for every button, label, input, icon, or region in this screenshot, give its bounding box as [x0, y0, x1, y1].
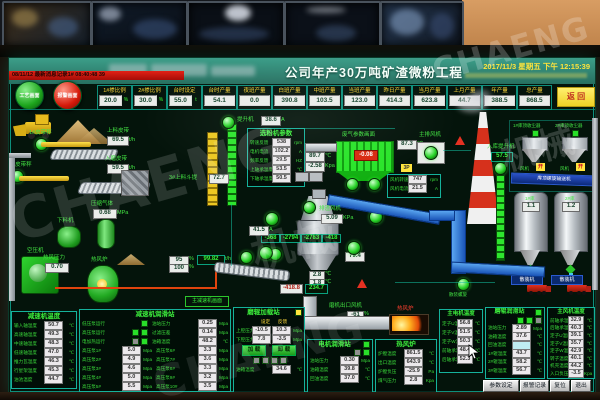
- cctv-feed-light: [99, 7, 121, 21]
- mill-pressure-2: -2794: [280, 234, 301, 243]
- param-row: 下腔压力7.8-3.5Mpa: [234, 335, 304, 344]
- status-indicator: [535, 309, 542, 316]
- param-value: 5.0: [122, 346, 141, 355]
- mouse-cursor: [468, 344, 480, 360]
- param-label: 高压泵3#: [82, 366, 122, 372]
- param-row: 高压泵2#4.9Mpa: [80, 355, 154, 364]
- param-value: 5.5: [122, 382, 141, 391]
- param-unit: Mpa: [141, 366, 152, 371]
- param-label: 风机转速: [390, 177, 408, 183]
- param-value: 48.2: [198, 337, 217, 346]
- filter-discharge-indicator: [346, 178, 359, 191]
- indicator-label: 电加热运行: [82, 339, 130, 345]
- param-value: 39.8: [340, 365, 359, 374]
- param-label: 高压泵7#: [156, 357, 198, 363]
- param-label: 出口温度: [378, 360, 404, 366]
- status-indicator: [280, 357, 287, 364]
- stat-unit: %: [157, 95, 165, 106]
- param-label: 油箱温度: [488, 334, 512, 340]
- param-value: 3.5: [198, 382, 217, 391]
- cyclone1-indicator: [532, 130, 539, 137]
- mill-cap: [312, 189, 326, 199]
- stat-box: 台时产量54.1: [202, 85, 237, 110]
- flow-line: [395, 282, 495, 283]
- mill-belt-label: 入磨皮带: [105, 156, 127, 163]
- param-label: 定子U温度: [550, 333, 568, 339]
- indicator-row: 高压泵运行: [80, 328, 150, 337]
- mill-pressure-3: -2783: [301, 234, 322, 243]
- param-label: 前轴承温度: [442, 348, 457, 354]
- feed-motor-indicator: [240, 251, 253, 264]
- bulk-screw-indicator: [457, 278, 470, 291]
- param-row: 高压泵9#3.2Mpa: [154, 373, 230, 382]
- param-label: 过滤压差: [152, 330, 198, 336]
- param-value: 49.3: [44, 330, 63, 339]
- stat-value: 55.0: [169, 95, 192, 106]
- param-unit: ℃: [473, 330, 480, 336]
- param-label: 输入轴温度: [14, 323, 44, 329]
- cctv-feed-light: [390, 9, 424, 35]
- param-label: 油箱温度: [152, 339, 198, 345]
- param-value: 4.6: [122, 364, 141, 373]
- flame-stove-label: 热风炉: [397, 306, 414, 313]
- datetime-display: 2017/11/3 星期五 下午 12:15:39: [483, 61, 590, 72]
- return-button[interactable]: 返 回: [557, 87, 595, 107]
- valve2-value: 100: [169, 264, 189, 273]
- cctv-feed-light: [225, 5, 251, 21]
- param-value: 56.7: [512, 366, 531, 375]
- silo1-cone: [520, 250, 540, 265]
- mill-current-value: 41.5: [249, 226, 269, 236]
- main-fan-indicator: [424, 146, 438, 160]
- param-row: 高压泵7#3.6Mpa: [154, 355, 230, 364]
- param-label: 入口负压: [550, 371, 568, 377]
- cctv-feed-light: [48, 17, 78, 37]
- param-value: 3.3: [198, 364, 217, 373]
- stat-value: 54.1: [204, 95, 235, 106]
- status-indicator: [132, 338, 139, 345]
- belt1-label: 1#皮带秤: [29, 130, 52, 137]
- col-header: 反馈: [274, 319, 291, 325]
- cyclone2-label: 2#库顶收尘器: [555, 122, 583, 129]
- param-unit: Kpa: [423, 378, 434, 383]
- param-label: 炉膛温度: [378, 351, 404, 357]
- param-row: 定子U温度56.8℃: [440, 319, 482, 328]
- param-row: 风机转速747rpm: [388, 175, 440, 184]
- alarm-log-button[interactable]: 报警记录: [520, 380, 549, 392]
- param-label: 回油温度: [488, 342, 512, 348]
- param-unit: ℃: [531, 351, 542, 357]
- param-label: 下轴承温度: [250, 176, 272, 182]
- belt1-unit: t/h: [129, 137, 135, 144]
- stat-box: 1#掺比例20.0%: [97, 85, 132, 110]
- slag-fan-unit: KPa: [343, 215, 353, 222]
- param-row: 频率反馈29.5HZ: [248, 156, 304, 165]
- fan-panel: 风机转速747rpm 风机电流21.5A: [387, 174, 441, 198]
- damper-box: [295, 172, 309, 182]
- param-row: 炉膛负压-25.9Pa: [376, 367, 436, 376]
- param-unit: Mpa: [217, 321, 228, 326]
- filter-discharge-indicator: [368, 178, 381, 191]
- feeder-label: 下料机: [57, 218, 74, 225]
- param-unit: ℃: [63, 323, 74, 329]
- hoist2-value: 72.7: [209, 174, 229, 184]
- stat-box: 当月产量623.8: [412, 85, 447, 110]
- param-label: 中速轴温度: [14, 341, 44, 347]
- stat-label: 夜班产量: [238, 86, 271, 95]
- param-value: 50.5: [272, 174, 291, 183]
- pipe-left-elbow: [9, 153, 31, 158]
- filter-label: 废气参数画面: [342, 132, 375, 139]
- param-row: 炉膛温度861.5℃: [376, 349, 436, 358]
- damper-box: [309, 172, 323, 182]
- param-value: 0.25: [198, 319, 217, 328]
- slag-fan-value: 5.09: [321, 214, 343, 224]
- param-unit: Mpa: [217, 330, 228, 335]
- param-unit: ℃: [584, 333, 592, 339]
- alarm-screen-button[interactable]: 报警画面: [53, 81, 82, 110]
- air-tank: [97, 219, 115, 249]
- main-fan-label: 主排风机: [419, 132, 441, 139]
- stat-label: 总产量: [518, 86, 551, 95]
- param-label: 下腔压力: [236, 337, 252, 343]
- param-label: 定子W温度: [550, 348, 568, 354]
- param-unit: ℃: [531, 334, 542, 340]
- motor-lube-panel: 电机润滑站 油站压力0.30Mpa 油箱温度39.8℃ 回油温度37.0℃: [307, 339, 373, 393]
- flame-icon: [392, 316, 424, 331]
- feed-belt-label: 上料皮带: [107, 128, 129, 135]
- param-value: 0.14: [198, 328, 217, 337]
- compressed-gas-unit: MPa: [117, 210, 128, 217]
- param-value: -3.5: [568, 369, 584, 378]
- panel-title: 电机润滑站: [308, 340, 361, 349]
- compressed-gas-value: 0.68: [93, 209, 117, 219]
- param-row: 煤气压力2.8Kpa: [376, 376, 436, 385]
- param-row: 回油温度℃: [486, 341, 544, 350]
- param-label: 高压泵4#: [82, 375, 122, 381]
- bucket-elevator-green: [227, 124, 237, 206]
- stat-value: 623.8: [414, 95, 445, 106]
- param-unit: A: [291, 149, 302, 154]
- param-value: 4.9: [122, 355, 141, 364]
- unload-button[interactable]: 卸 载: [272, 345, 296, 356]
- indicator-row: 低压泵运行: [80, 319, 150, 328]
- param-value: 3.6: [198, 355, 217, 364]
- wall-shadow: [0, 45, 600, 57]
- silo2-cone: [560, 250, 580, 265]
- param-row: 风机电流21.5A: [388, 184, 440, 193]
- param-value: 48.3: [44, 339, 63, 348]
- belt1-material-flow: [41, 142, 91, 147]
- stat-value: 390.8: [274, 95, 305, 106]
- indicator-label: 低压泵运行: [82, 321, 139, 327]
- slag-fan-label: 排渣风机: [319, 206, 341, 213]
- cctv-monitor: [187, 1, 285, 48]
- param-label: 行星架温度: [14, 368, 44, 374]
- param-value: -10.5: [252, 326, 271, 335]
- param-value: 102.2: [272, 147, 291, 156]
- reset-button[interactable]: 复位: [550, 380, 570, 392]
- param-row: 高压泵6#3.3Mpa: [154, 346, 230, 355]
- stat-box: 中班产量103.5: [307, 85, 342, 110]
- cctv-monitor: [91, 1, 188, 48]
- param-unit: Mpa: [217, 366, 228, 371]
- flow-line: [231, 204, 232, 266]
- param-unit: ℃: [584, 318, 592, 324]
- stat-label: 1#掺比例: [98, 86, 131, 95]
- param-value: 747: [408, 175, 427, 184]
- param-label: 前轴承温度: [550, 318, 568, 324]
- param-label: 上腔压力: [236, 328, 252, 334]
- compressed-gas-label: 压缩气体: [91, 201, 113, 208]
- param-unit: Mpa: [531, 326, 542, 331]
- indicator-row: [234, 356, 304, 365]
- silo2-label: 2#库: [565, 195, 575, 202]
- param-row: 中速轴温度48.3℃: [12, 339, 76, 348]
- stat-box: 总产量868.5: [517, 85, 552, 110]
- vibrating-screen: [121, 170, 149, 196]
- param-label: 低速轴温度: [14, 350, 44, 356]
- param-row: 电机电流102.2A: [248, 147, 304, 156]
- roller-lube-panel: 磨辊润滑站 油站压力2.89Mpa 油箱温度37.6℃ 回油温度℃ 1#辊温度4…: [485, 307, 545, 379]
- param-label: 定子V温度: [442, 330, 457, 336]
- param-row: 上腔压力-10.510.3Mpa: [234, 326, 304, 335]
- panel-title: 磨辊润滑站: [486, 308, 533, 317]
- settings-button[interactable]: 参数设定: [483, 380, 519, 392]
- param-value: 10.3: [272, 326, 291, 335]
- param-label: 机壳温度: [550, 363, 568, 369]
- param-unit: ℃: [473, 321, 480, 327]
- silo1-label: 1#库: [525, 195, 535, 202]
- bulk-loader-label: 散装机: [551, 275, 583, 285]
- stat-value: 414.3: [379, 95, 410, 106]
- param-unit: ℃: [584, 325, 592, 331]
- cctv-feed-light: [306, 7, 346, 13]
- param-row: 低速轴温度47.0℃: [12, 348, 76, 357]
- param-unit: ℃: [359, 367, 370, 373]
- cyclone2-body: [562, 137, 588, 151]
- param-row: 油站压力0.30Mpa: [308, 356, 372, 365]
- stat-box: 昨日产量414.3: [377, 85, 412, 110]
- param-unit: ℃: [63, 377, 74, 383]
- gas-press-unit: Kpa: [325, 163, 335, 170]
- reducer-screen-button[interactable]: 主减速机画面: [185, 296, 229, 307]
- cctv-monitor: [2, 1, 92, 48]
- param-label: 油箱温度: [236, 367, 272, 373]
- status-indicator: [354, 349, 361, 356]
- param-value: 3.3: [198, 346, 217, 355]
- stat-box: 白班产量390.8: [272, 85, 307, 110]
- param-unit: HZ: [291, 158, 302, 163]
- stat-label: 昨日产量: [378, 86, 411, 95]
- param-label: 定子V温度: [550, 341, 568, 347]
- alarm-triangle-icon: [455, 136, 465, 145]
- stove-panel: 热风炉 炉膛温度861.5℃ 出口温度643.9℃ 炉膛负压-25.9Pa 煤气…: [375, 339, 437, 393]
- param-label: 高压泵2#: [82, 357, 122, 363]
- param-row: 2#辊温度58.2℃: [486, 358, 544, 367]
- param-value: 7.8: [252, 335, 271, 344]
- mill-motor-indicator: [347, 241, 361, 255]
- status-indicator: [363, 349, 370, 356]
- process-screen-button[interactable]: 工艺画面: [15, 81, 44, 110]
- param-unit: Mpa: [141, 375, 152, 380]
- cctv-feed-light: [133, 19, 177, 39]
- param-label: 频率反馈: [250, 158, 272, 164]
- param-label: 上轴承温度: [250, 167, 272, 173]
- status-indicator: [253, 357, 260, 364]
- status-indicator: [271, 357, 278, 364]
- cctv-feed-light: [12, 9, 38, 27]
- param-row: 油箱温度48.2℃: [150, 337, 230, 346]
- hot-gas-pipe: [55, 287, 217, 289]
- param-value: 50.7: [44, 321, 63, 330]
- cyclone1-label: 1#库顶收尘器: [513, 122, 541, 129]
- scada-screen: 公司年产30万吨矿渣微粉工程 2017/11/3 星期五 下午 12:15:39…: [8, 57, 596, 394]
- param-row: 高压泵5#5.5Mpa: [80, 382, 154, 391]
- stove-pressure-label: 热风压力: [43, 255, 65, 262]
- header-row: 设定反馈: [234, 317, 304, 326]
- alarm-message-bar: 08/11/12 最新消息记录1# 08:40:48 39: [9, 71, 184, 80]
- cyclone1-state: 开: [536, 163, 545, 171]
- param-unit: ℃: [291, 367, 302, 373]
- smoke: [471, 90, 491, 102]
- panel-title: 热风炉: [376, 340, 436, 349]
- stat-value: 30.0: [134, 95, 157, 106]
- param-unit: ℃: [359, 376, 370, 382]
- param-label: 转速反馈: [250, 140, 272, 146]
- param-row: 出口温度643.9℃: [376, 358, 436, 367]
- param-row: 推力瓦温度46.3℃: [12, 357, 76, 366]
- param-unit: ℃: [584, 363, 592, 369]
- belt1-value: 69.5: [107, 136, 129, 146]
- panel-title: 磨辊加载站: [234, 308, 293, 317]
- mill-cone: [301, 254, 337, 270]
- loader-cab: [35, 114, 49, 125]
- load-button[interactable]: 加 载: [242, 345, 266, 356]
- stat-box: 夜班产量0.0: [237, 85, 272, 110]
- silo1-level: 1.1: [522, 202, 540, 212]
- param-row: 转速反馈538rpm: [248, 138, 304, 147]
- param-row: 3#辊温度56.7℃: [486, 367, 544, 376]
- stat-label: 2#掺比例: [133, 86, 166, 95]
- param-label: 转子温度: [550, 356, 568, 362]
- param-value: 56.8: [457, 319, 473, 328]
- flow-line: [443, 150, 471, 151]
- truck-icon: [527, 285, 547, 292]
- stat-value: 103.5: [309, 95, 340, 106]
- reducer-temp-panel: 减速机温度 输入轴温度50.7℃ 高速轴温度49.3℃ 中速轴温度48.3℃ 低…: [11, 311, 77, 389]
- stat-value: 123.0: [344, 95, 375, 106]
- param-label: 高速轴温度: [14, 332, 44, 338]
- pipe-right: [592, 118, 598, 290]
- param-row: 高压泵10#3.5Mpa: [154, 382, 230, 391]
- param-unit: A: [427, 186, 438, 191]
- mill-feed-conveyor: [214, 261, 291, 281]
- param-value: 37.0: [340, 374, 359, 383]
- stat-label: 台时产量: [203, 86, 236, 95]
- param-unit: Mpa: [217, 348, 228, 353]
- mill-aux-unit1: ℃: [325, 271, 331, 278]
- param-row: 入口负压-3.5Kpa: [548, 370, 594, 378]
- param-label: 油池温度: [14, 377, 44, 383]
- indicator-row: [308, 349, 372, 356]
- stat-label: 中班产量: [308, 86, 341, 95]
- param-value: 861.5: [404, 349, 423, 358]
- truck-icon: [567, 285, 587, 292]
- param-value: 643.9: [404, 358, 423, 367]
- param-label: 定子W温度: [442, 339, 457, 345]
- company-contact-blur: [465, 73, 587, 78]
- status-indicator: [535, 317, 542, 324]
- valve2-unit: %: [189, 264, 194, 271]
- param-unit: ℃: [584, 348, 592, 354]
- hoist-value: 38.6: [261, 116, 281, 126]
- param-label: 3#辊温度: [488, 368, 512, 374]
- stat-label: 台时设定: [168, 86, 201, 95]
- param-unit: Mpa: [217, 375, 228, 380]
- param-unit: Kpa: [584, 371, 592, 376]
- param-unit: ℃: [423, 351, 434, 357]
- duct-horizontal: [429, 210, 455, 221]
- param-row: 高压泵8#3.3Mpa: [154, 364, 230, 373]
- param-label: 高压泵10#: [156, 384, 198, 390]
- param-unit: Mpa: [141, 357, 152, 362]
- param-label: 油箱温度: [310, 367, 340, 373]
- cyclone2-indicator: [572, 130, 579, 137]
- param-value: 21.5: [408, 184, 427, 193]
- stat-value: 0.0: [239, 95, 270, 106]
- param-unit: ℃: [63, 341, 74, 347]
- cctv-monitor: [284, 1, 381, 48]
- param-unit: Mpa: [141, 348, 152, 353]
- param-label: 推力瓦温度: [14, 359, 44, 365]
- param-label: 1#辊温度: [488, 351, 512, 357]
- control-room-photo: 公司年产30万吨矿渣微粉工程 2017/11/3 星期五 下午 12:15:39…: [0, 0, 600, 400]
- param-value: 3.2: [198, 373, 217, 382]
- param-unit: ℃: [63, 350, 74, 356]
- param-unit: ℃: [63, 359, 74, 365]
- param-unit: Mpa: [359, 358, 370, 363]
- main-fan-temp-panel: 主风机温度 前轴承温度32.9℃ 后轴承温度40.3℃ 定子U温度39.1℃ 定…: [547, 307, 595, 379]
- param-unit: Pa: [423, 369, 434, 374]
- param-row: 1#辊温度43.7℃: [486, 350, 544, 359]
- param-row: 过滤压差0.14Mpa: [150, 328, 230, 337]
- roller-loading-panel: 磨辊加载站 设定反馈 上腔压力-10.510.3Mpa 下腔压力7.8-3.5M…: [233, 307, 305, 394]
- mill-motor-indicator: [303, 201, 316, 214]
- loader-bucket: [13, 124, 26, 136]
- param-value: 0.30: [340, 356, 359, 365]
- param-label: 回油温度: [310, 376, 340, 382]
- stat-value: 868.5: [519, 95, 550, 106]
- param-label: 2#辊温度: [488, 359, 512, 365]
- status-indicator: [141, 320, 148, 327]
- fan-temp-value: 87.3: [397, 140, 417, 150]
- param-row: 输入轴温度50.7℃: [12, 321, 76, 330]
- param-row: 高压泵3#4.6Mpa: [80, 364, 154, 373]
- param-label: 油站压力: [488, 325, 512, 331]
- exit-button[interactable]: 退出: [571, 380, 591, 392]
- stat-unit: %: [122, 95, 130, 106]
- hoist-label: 提升机: [237, 117, 254, 124]
- cctv-feed-light: [316, 25, 356, 41]
- param-label: 炉膛负压: [378, 369, 404, 375]
- desk-edge: [0, 392, 600, 400]
- hot-air-pipe: [303, 316, 393, 330]
- stat-label: 当月产量: [413, 86, 446, 95]
- param-row: 油箱温度34.6℃: [234, 365, 304, 374]
- param-unit: ℃: [217, 339, 228, 345]
- param-unit: rpm: [427, 177, 438, 182]
